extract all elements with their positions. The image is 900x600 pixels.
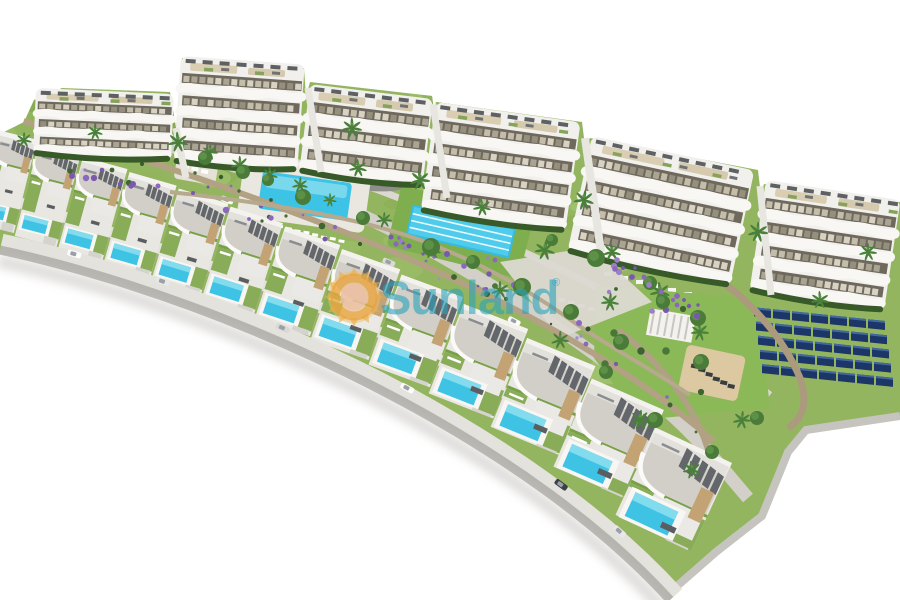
svg-text:Sunland: Sunland: [380, 271, 558, 324]
svg-text:®: ®: [552, 277, 560, 289]
